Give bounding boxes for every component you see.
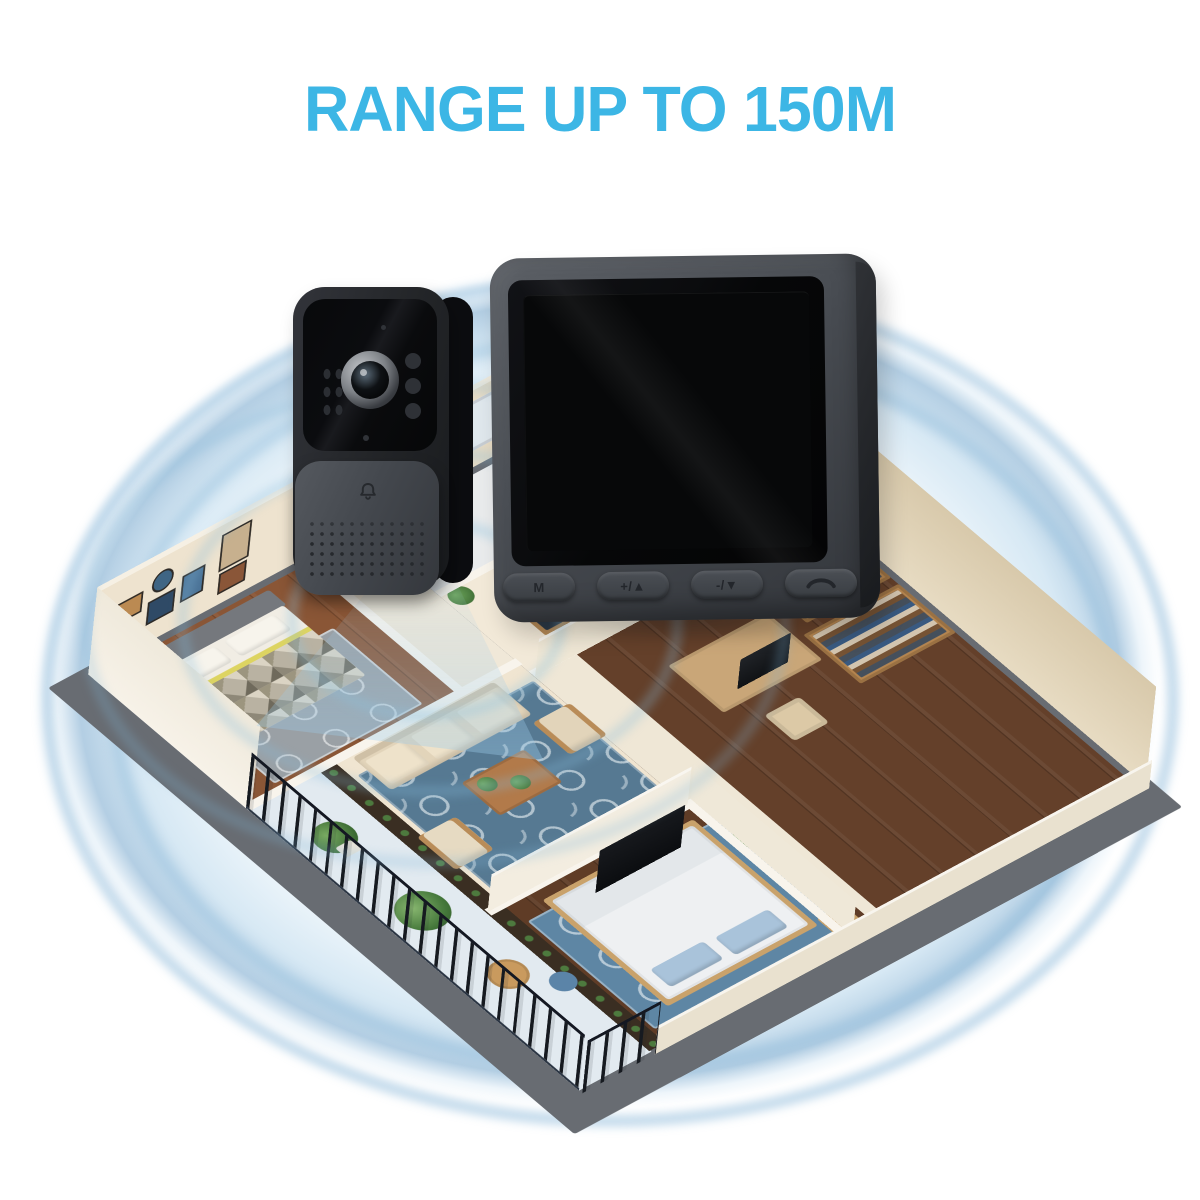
monitor-display-area [523, 291, 813, 551]
answer-call-button [785, 569, 857, 598]
doorbell-speaker-plate [295, 461, 439, 595]
doorbell-camera-panel [303, 299, 437, 451]
doorbell-body [293, 287, 449, 587]
monitor-screen [508, 276, 828, 566]
potted-plant [473, 774, 502, 794]
microphone-hole [363, 435, 369, 441]
phone-icon [804, 574, 838, 591]
ir-led-column [405, 353, 423, 429]
camera-lens-glass [351, 361, 389, 399]
bell-icon [351, 475, 385, 509]
speaker-grille [307, 519, 427, 581]
menu-button: M [503, 573, 575, 602]
monitor-button-bar: M +/▲ -/▼ [528, 561, 833, 609]
volume-up-button: +/▲ [597, 571, 669, 600]
headline: RANGE UP TO 150M [12, 72, 1188, 146]
wall-art-frame [146, 588, 176, 626]
doorbell-camera-device [293, 287, 473, 599]
camera-lens [341, 351, 399, 409]
potted-plant [506, 772, 535, 792]
indoor-monitor-device: M +/▲ -/▼ [489, 253, 880, 622]
wall-art-frame [180, 564, 206, 603]
ir-led-array [321, 365, 343, 417]
light-sensor-dot [381, 325, 386, 330]
doorbell-range-marketing-image: M +/▲ -/▼ [0, 0, 1200, 1200]
volume-down-button: -/▼ [691, 570, 763, 599]
